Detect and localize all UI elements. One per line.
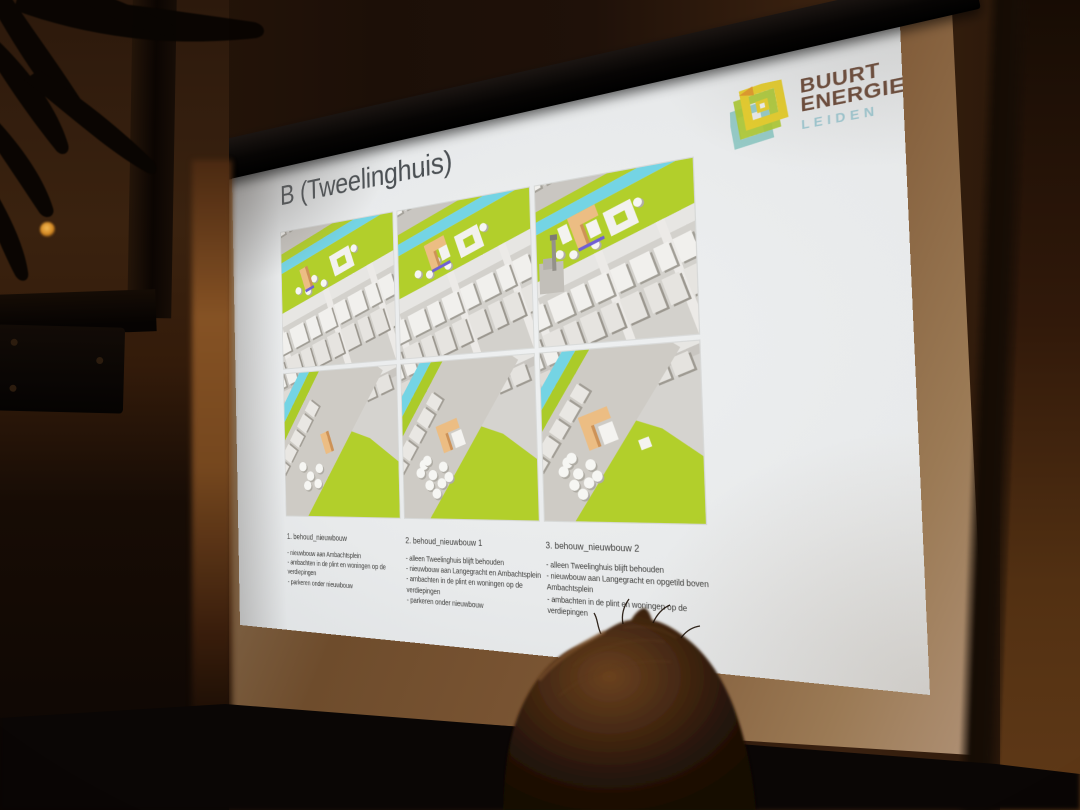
option-heading: 1. behoud_nieuwbouw <box>287 532 404 545</box>
speaker-bolt <box>11 339 18 346</box>
logo-text: BUURT ENERGIE LEIDEN <box>799 53 907 138</box>
plant-silhouette <box>0 0 304 332</box>
option-heading: 2. behoud_nieuwbouw 1 <box>405 536 543 550</box>
photo-scene: B (Tweelinghuis) BUURT ENERGIE LEID <box>0 0 1080 810</box>
speaker-bolt <box>9 385 16 392</box>
map-panel-top-3 <box>535 158 699 347</box>
buurt-energie-logo-icon <box>729 78 793 151</box>
audience-head <box>503 576 765 810</box>
buurt-energie-logo: BUURT ENERGIE LEIDEN <box>729 53 907 151</box>
map-panel-top-2 <box>397 188 533 359</box>
map-panel-bottom-3 <box>540 341 706 524</box>
option-block-1: 1. behoud_nieuwbouw - nieuwbouw aan Amba… <box>287 532 405 595</box>
speaker-bolt <box>96 357 103 364</box>
map-panel-bottom-1 <box>284 365 400 518</box>
option-heading: 3. behouw_nieuwbouw 2 <box>545 541 712 557</box>
speaker-box <box>0 324 125 413</box>
map-panel-bottom-2 <box>401 354 539 520</box>
